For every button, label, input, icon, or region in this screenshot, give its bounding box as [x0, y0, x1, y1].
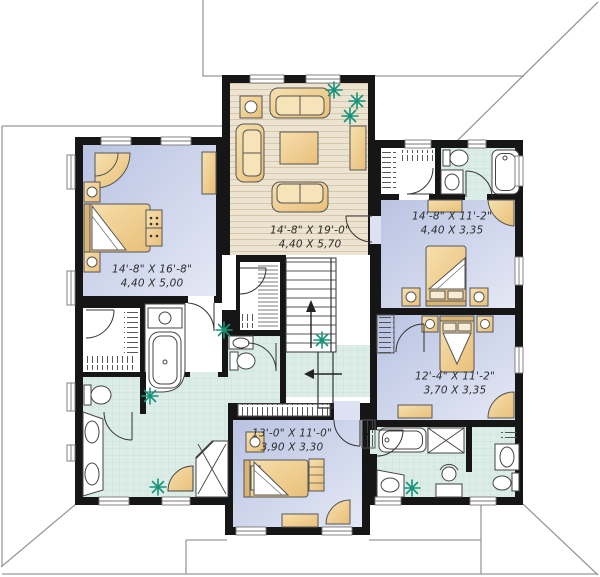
window [250, 75, 284, 83]
vanity-sink [495, 444, 519, 470]
lamp [87, 187, 97, 197]
linen-shelves [501, 429, 517, 442]
window [322, 527, 352, 535]
window [515, 257, 523, 285]
shower [428, 428, 464, 453]
plant-icon [404, 480, 420, 496]
coffee-table [280, 132, 318, 164]
chair [442, 467, 456, 481]
plant-icon [216, 322, 232, 338]
window [99, 497, 129, 505]
master-bed [84, 204, 150, 252]
hall-tile [286, 345, 370, 397]
double-vanity [83, 412, 103, 496]
lamp [245, 101, 257, 113]
lamp [481, 320, 490, 329]
window [375, 497, 401, 505]
bed [426, 246, 466, 306]
lamp [87, 257, 97, 267]
corner-shower [196, 441, 228, 497]
dresser [282, 514, 318, 527]
window [515, 347, 523, 373]
sofa-left [236, 124, 264, 182]
lamp [426, 320, 435, 329]
lamp [250, 437, 260, 447]
closet-rod [377, 315, 394, 353]
lamp [406, 292, 416, 302]
wall-sink [229, 336, 253, 349]
floor-plan: 14'-8" X 16'-8" 4,40 X 5,00 14'-8" X 19'… [0, 0, 600, 577]
window [67, 155, 75, 189]
vanity-sink [377, 470, 404, 497]
plant-icon [314, 332, 330, 348]
plant-icon [142, 388, 158, 404]
window [162, 497, 190, 505]
window [67, 271, 75, 305]
armoire [202, 152, 216, 194]
dresser [398, 405, 432, 418]
chest-of-drawers [309, 459, 324, 491]
garden-tub [148, 308, 182, 388]
linen-closet [362, 420, 375, 448]
window [67, 383, 75, 411]
lamp [474, 292, 484, 302]
vanity-sink [441, 170, 463, 194]
plant-icon [342, 108, 358, 124]
window [236, 527, 266, 535]
toilet [443, 150, 468, 166]
plant-icon [349, 93, 365, 109]
window [161, 137, 191, 145]
bed [440, 316, 474, 372]
window [306, 75, 340, 83]
closet-rod [238, 404, 330, 416]
chest-of-drawers [146, 210, 162, 246]
sofa-bottom [272, 182, 328, 212]
plant-icon [150, 479, 166, 495]
sofa-top [270, 88, 330, 118]
plant-icon [326, 82, 342, 98]
window [67, 445, 75, 461]
dresser [428, 200, 462, 212]
toilet [84, 385, 111, 405]
window [101, 137, 131, 145]
window [468, 140, 486, 148]
window [515, 156, 523, 186]
toilet [230, 352, 255, 370]
corridor-floor [185, 303, 222, 372]
window [470, 497, 496, 505]
passage-floor [222, 255, 236, 310]
media-cabinet [350, 126, 366, 170]
window [405, 140, 431, 148]
floor-plan-drawing [0, 0, 600, 577]
bed [244, 460, 308, 497]
